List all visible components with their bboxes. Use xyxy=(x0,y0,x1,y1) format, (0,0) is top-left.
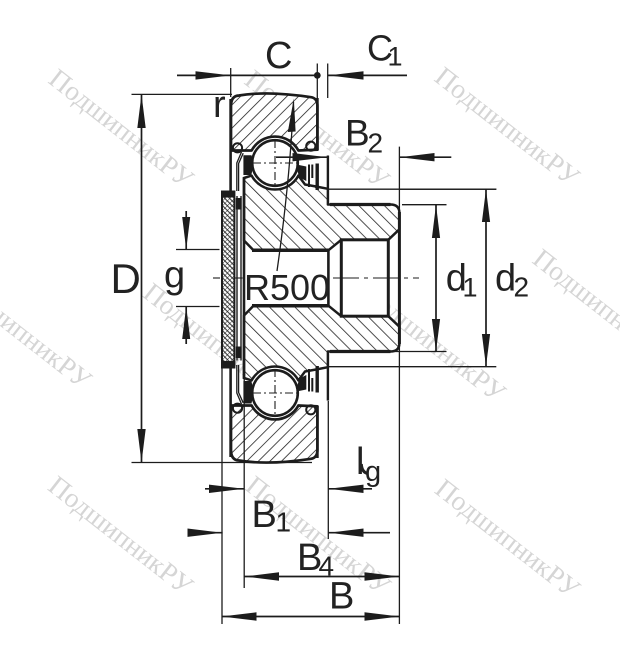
svg-text:1: 1 xyxy=(276,507,292,538)
svg-text:1: 1 xyxy=(463,273,478,303)
svg-text:B: B xyxy=(252,494,277,536)
svg-text:C: C xyxy=(265,35,292,77)
svg-text:B: B xyxy=(345,113,370,154)
svg-text:g: g xyxy=(365,456,381,488)
svg-text:ПодшипникРУ: ПодшипникРУ xyxy=(43,62,200,194)
svg-text:B: B xyxy=(329,576,354,618)
svg-text:ПодшипникРУ: ПодшипникРУ xyxy=(430,472,587,604)
svg-text:ПодшипникРУ: ПодшипникРУ xyxy=(0,263,98,395)
svg-text:1: 1 xyxy=(388,42,403,72)
svg-text:R500: R500 xyxy=(244,267,330,308)
svg-text:g: g xyxy=(164,255,185,297)
svg-text:ПодшипникРУ: ПодшипникРУ xyxy=(429,60,586,192)
svg-text:D: D xyxy=(111,255,141,302)
svg-text:ПодшипникРУ: ПодшипникРУ xyxy=(43,469,200,601)
svg-text:2: 2 xyxy=(368,128,384,159)
svg-text:ПодшипникРУ: ПодшипникРУ xyxy=(527,242,620,374)
svg-text:2: 2 xyxy=(514,272,530,303)
svg-text:l: l xyxy=(356,441,364,483)
svg-text:r: r xyxy=(213,84,226,126)
